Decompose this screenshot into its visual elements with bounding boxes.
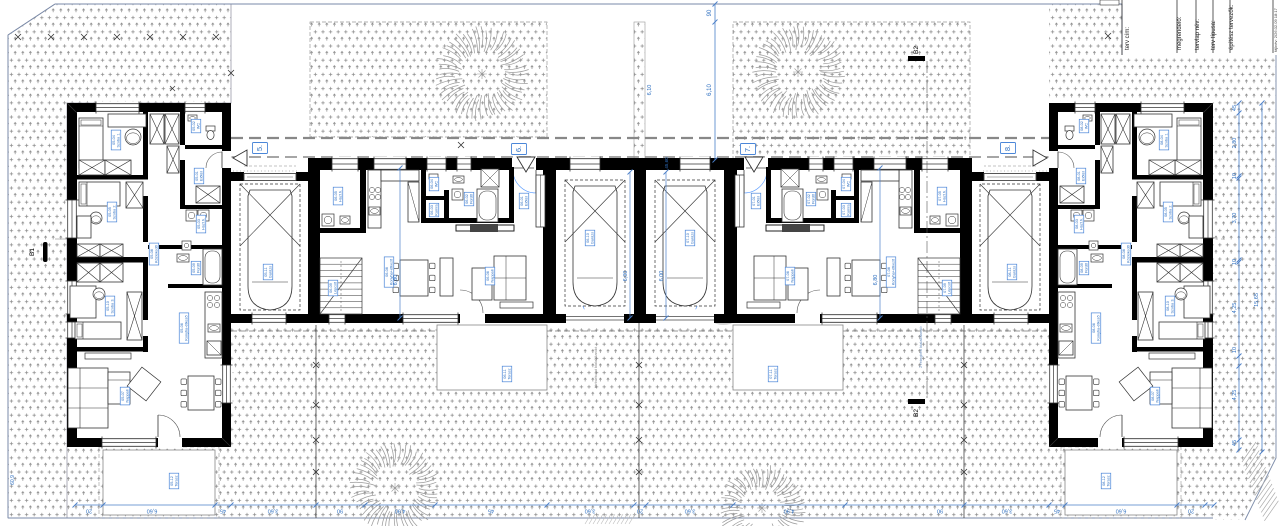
svg-text:Konyha-étkező: Konyha-étkező (184, 315, 188, 340)
svg-text:Nappali: Nappali (1155, 389, 1159, 402)
svg-text:6.: 6. (514, 146, 523, 152)
svg-text:Fürdő: Fürdő (196, 263, 200, 273)
svg-text:Fürdő: Fürdő (469, 194, 473, 204)
svg-text:WC: WC (1084, 123, 1088, 130)
svg-text:Kamra: Kamra (846, 204, 850, 216)
svg-text:Házt.h.: Házt.h. (338, 190, 342, 202)
svg-text:3,70: 3,70 (1232, 213, 1238, 224)
svg-text:Közlekedő: Közlekedő (154, 245, 158, 263)
svg-text:Szoba 3.: Szoba 3. (110, 299, 114, 314)
svg-text:térburkolat kialakítandó: térburkolat kialakítandó (593, 346, 598, 388)
svg-text:15,65: 15,65 (1254, 293, 1260, 307)
svg-text:Közlekedő: Közlekedő (1126, 245, 1130, 263)
svg-text:4,25: 4,25 (1232, 303, 1238, 314)
svg-text:Terasz: Terasz (773, 368, 777, 379)
svg-text:3,60: 3,60 (685, 508, 696, 514)
svg-text:Szoba 3.: Szoba 3. (1170, 299, 1174, 314)
svg-text:6,80: 6,80 (393, 275, 399, 286)
svg-text:Garázs: Garázs (268, 266, 272, 278)
svg-text:3,60: 3,60 (268, 508, 279, 514)
svg-text:4,25: 4,25 (1232, 390, 1238, 401)
svg-text:Előtér: Előtér (524, 195, 528, 206)
svg-text:Terasz: Terasz (174, 475, 178, 486)
svg-text:Szoba 1.: Szoba 1. (116, 133, 120, 148)
svg-text:Garázs: Garázs (590, 232, 594, 244)
svg-text:Kamra: Kamra (434, 204, 438, 216)
svg-text:60,9: 60,9 (10, 475, 16, 485)
svg-text:6,10: 6,10 (647, 85, 653, 96)
svg-text:Házt.h.: Házt.h. (942, 190, 946, 202)
svg-text:Lépcső: Lépcső (947, 282, 951, 294)
svg-text:Házt.h.: Házt.h. (1079, 218, 1083, 230)
svg-text:6,00: 6,00 (623, 271, 629, 282)
svg-text:Fürdő: Fürdő (1084, 263, 1088, 273)
svg-text:45,60: 45,60 (664, 157, 669, 169)
svg-text:45: 45 (1232, 105, 1238, 111)
svg-text:Nappali: Nappali (125, 389, 129, 402)
svg-text:WC: WC (434, 181, 438, 188)
svg-text:tervlap név:: tervlap név: (1195, 19, 1201, 50)
svg-text:Garázs: Garázs (1012, 266, 1016, 278)
svg-text:90: 90 (337, 508, 343, 514)
svg-text:Konyha+étkező: Konyha+étkező (891, 259, 895, 285)
svg-text:3,60: 3,60 (1002, 508, 1013, 514)
svg-text:Nappali: Nappali (490, 269, 494, 282)
svg-text:3,60: 3,60 (585, 508, 596, 514)
svg-text:Szoba 2.: Szoba 2. (1168, 205, 1172, 220)
svg-text:8.: 8. (1003, 145, 1012, 151)
svg-text:Házt.h.: Házt.h. (201, 218, 205, 230)
svg-text:45: 45 (1054, 508, 1060, 514)
svg-text:WC: WC (196, 123, 200, 130)
svg-text:Előtér: Előtér (1081, 170, 1085, 181)
svg-text:2,80: 2,80 (1232, 138, 1238, 149)
svg-text:6,80: 6,80 (873, 275, 879, 286)
svg-text:Lépcső: Lépcső (333, 282, 337, 294)
svg-text:fájlnév: 2/26.02.09 18:17: fájlnév: 2/26.02.09 18:17 (1273, 7, 1278, 52)
svg-text:7.: 7. (743, 146, 752, 152)
svg-text:6,60: 6,60 (147, 508, 158, 514)
svg-text:10: 10 (1232, 173, 1238, 179)
svg-text:10: 10 (1232, 347, 1238, 353)
svg-text:WC: WC (846, 181, 850, 188)
svg-text:Előtér: Előtér (756, 195, 760, 206)
svg-text:6,60: 6,60 (1116, 508, 1127, 514)
svg-text:6,00: 6,00 (659, 271, 665, 282)
svg-text:45: 45 (220, 508, 226, 514)
svg-text:45: 45 (1232, 440, 1238, 446)
svg-text:20: 20 (86, 508, 92, 514)
svg-text:20: 20 (637, 508, 643, 514)
svg-text:10: 10 (1232, 259, 1238, 265)
svg-text:Szoba 2.: Szoba 2. (112, 205, 116, 220)
svg-text:90: 90 (707, 9, 713, 16)
svg-text:Garázs: Garázs (690, 232, 694, 244)
svg-text:90: 90 (937, 508, 943, 514)
svg-text:B1: B1 (29, 248, 36, 256)
svg-text:Nappali: Nappali (790, 269, 794, 282)
svg-text:Fürdő: Fürdő (811, 194, 815, 204)
svg-text:terv cím:: terv cím: (1125, 27, 1131, 50)
svg-text:4,90: 4,90 (395, 508, 406, 514)
svg-text:Szoba 1.: Szoba 1. (1164, 133, 1168, 148)
svg-text:2 rétegben kialakítandó: 2 rétegben kialakítandó (918, 326, 923, 368)
svg-text:B2: B2 (913, 46, 920, 54)
svg-text:építész tervezők:: építész tervezők: (1229, 4, 1235, 50)
svg-text:Konyha-étkező: Konyha-étkező (1096, 315, 1100, 340)
svg-text:Előtér: Előtér (199, 170, 203, 181)
svg-text:5.: 5. (255, 145, 264, 151)
svg-text:45: 45 (488, 508, 494, 514)
svg-text:Terasz: Terasz (507, 368, 511, 379)
svg-text:terv típusa:: terv típusa: (1211, 20, 1217, 50)
svg-text:20: 20 (1188, 508, 1194, 514)
svg-text:Terasz: Terasz (1106, 475, 1110, 486)
svg-text:megrendelő:: megrendelő: (1177, 16, 1183, 50)
svg-text:4,90: 4,90 (784, 508, 795, 514)
svg-text:6,10: 6,10 (707, 84, 713, 96)
svg-text:B2: B2 (913, 409, 920, 417)
